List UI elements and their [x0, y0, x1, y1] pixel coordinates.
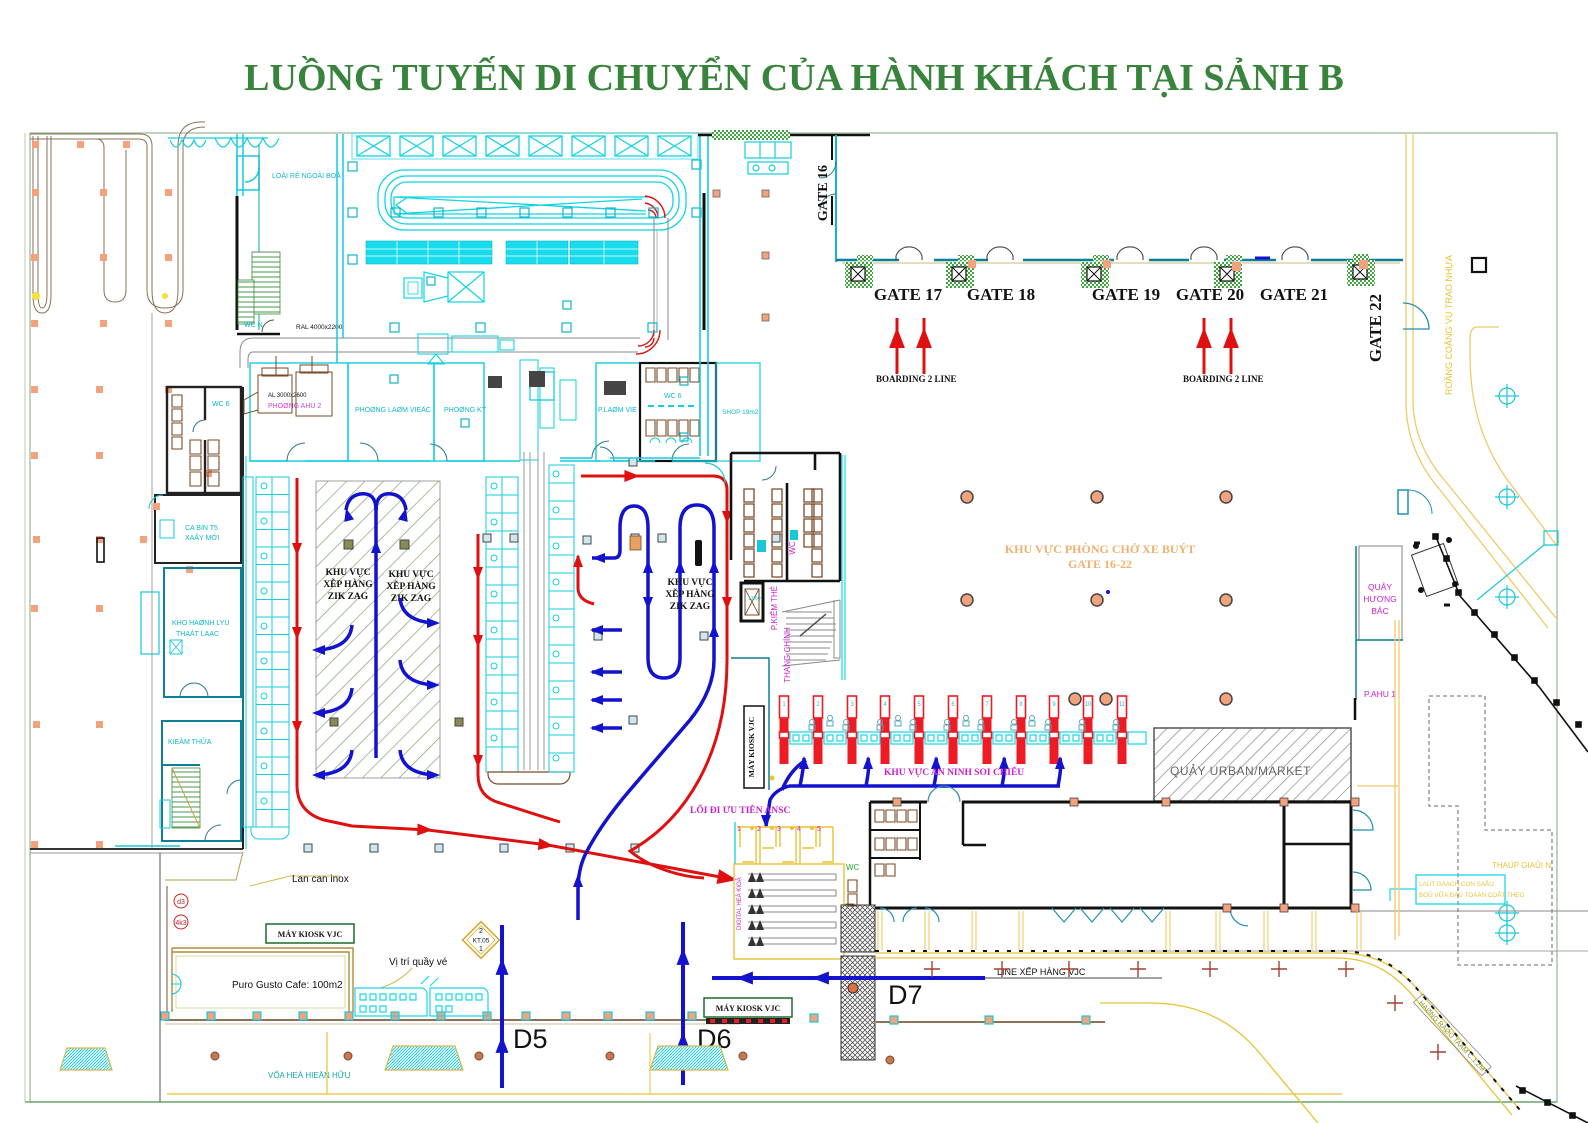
- svg-text:1: 1: [737, 826, 741, 833]
- svg-text:4k3: 4k3: [175, 920, 186, 927]
- svg-text:MÁY KIOSK VJC: MÁY KIOSK VJC: [716, 1003, 781, 1013]
- svg-text:4: 4: [797, 826, 801, 833]
- svg-text:2: 2: [757, 826, 761, 833]
- svg-text:RAL 4000x2200: RAL 4000x2200: [296, 324, 343, 331]
- svg-text:GATE 20: GATE 20: [1176, 285, 1244, 304]
- svg-text:BOARDING 2 LINE: BOARDING 2 LINE: [876, 374, 957, 384]
- svg-text:KHU VỰC: KHU VỰC: [325, 567, 370, 578]
- svg-text:BẢC: BẢC: [1371, 605, 1388, 616]
- svg-text:KT,05: KT,05: [473, 938, 490, 945]
- svg-text:BOARDING 2 LINE: BOARDING 2 LINE: [1183, 374, 1264, 384]
- svg-text:GATE 16-22: GATE 16-22: [1068, 557, 1132, 571]
- svg-text:KIEẢM THỬA: KIEẢM THỬA: [168, 737, 212, 746]
- svg-text:PHOØNG LAØM VIEÄC: PHOØNG LAØM VIEÄC: [355, 406, 431, 414]
- svg-text:THAÚP GIAÛI N: THAÚP GIAÛI N: [1492, 861, 1551, 870]
- svg-text:11: 11: [1119, 702, 1126, 708]
- svg-text:GATE 17: GATE 17: [874, 285, 943, 304]
- svg-text:AL 3000x2600: AL 3000x2600: [268, 393, 307, 399]
- svg-text:CA BIN T5: CA BIN T5: [185, 525, 218, 532]
- svg-text:Vị trí quầy vé: Vị trí quầy vé: [389, 956, 448, 968]
- svg-text:BOÛ VỮA ĐAÙ TOAÀN COÂT THEO: BOÛ VỮA ĐAÙ TOAÀN COÂT THEO: [1419, 890, 1524, 899]
- svg-text:WC 6: WC 6: [212, 401, 230, 408]
- svg-text:DIGITAL HEÀ KIOẬ: DIGITAL HEÀ KIOẬ: [736, 877, 743, 930]
- svg-text:KHU VỰC: KHU VỰC: [667, 577, 712, 588]
- svg-text:P.LAØM VIE: P.LAØM VIE: [598, 407, 637, 414]
- svg-text:D7: D7: [888, 980, 923, 1010]
- svg-text:MÁY KIOSK VJC: MÁY KIOSK VJC: [278, 929, 343, 939]
- svg-text:GATE 19: GATE 19: [1092, 285, 1160, 304]
- svg-text:WC: WC: [788, 541, 797, 555]
- svg-text:THANG CHÍNH: THANG CHÍNH: [783, 627, 792, 683]
- svg-text:PHOØNG AHU 2: PHOØNG AHU 2: [268, 403, 321, 410]
- svg-text:QUẢY URBAN/MARKET: QUẢY URBAN/MARKET: [1170, 763, 1311, 778]
- svg-text:ZIK ZAG: ZIK ZAG: [391, 594, 432, 604]
- svg-text:GATE 18: GATE 18: [967, 285, 1035, 304]
- svg-text:KHU VỰC PHÒNG CHỞ XE BUÝT: KHU VỰC PHÒNG CHỞ XE BUÝT: [1005, 542, 1195, 556]
- svg-text:ZIK ZAG: ZIK ZAG: [670, 602, 711, 612]
- svg-text:Lan can inox: Lan can inox: [292, 874, 349, 885]
- svg-text:LOÀI RẺ NGOÀI BOÃ: LOÀI RẺ NGOÀI BOÃ: [272, 171, 341, 180]
- svg-text:d3: d3: [177, 899, 185, 906]
- svg-text:MÁY KIOSK VJC: MÁY KIOSK VJC: [746, 717, 756, 777]
- svg-text:13.60: 13.60: [748, 596, 761, 602]
- svg-text:KHO HAØNH LYÙ: KHO HAØNH LYÙ: [172, 618, 229, 627]
- svg-text:D5: D5: [513, 1024, 548, 1054]
- svg-text:VỐA HEÀ HIEÄN HỮU: VỐA HEÀ HIEÄN HỮU: [268, 1070, 351, 1080]
- svg-text:P.KIỂM THẺ: P.KIỂM THẺ: [770, 586, 779, 630]
- svg-text:KHU VỰC: KHU VỰC: [388, 569, 433, 580]
- svg-text:3: 3: [777, 826, 781, 833]
- svg-text:GATE 16: GATE 16: [816, 165, 831, 221]
- svg-text:SHOP 19m2: SHOP 19m2: [722, 409, 759, 416]
- svg-text:P.AHU 1: P.AHU 1: [1364, 689, 1396, 699]
- svg-text:1: 1: [479, 946, 483, 953]
- svg-text:10: 10: [1085, 702, 1092, 708]
- svg-text:WC 6: WC 6: [664, 393, 682, 400]
- svg-text:WC: WC: [846, 863, 860, 872]
- svg-text:THAÁT LAẠC: THAÁT LAẠC: [176, 629, 219, 638]
- svg-text:LAÙT GAẠCH CON SAÂU: LAÙT GAẠCH CON SAÂU: [1419, 879, 1494, 888]
- svg-text:WC N: WC N: [244, 322, 263, 329]
- svg-text:QUẢY: QUẢY: [1368, 581, 1392, 592]
- svg-text:Puro Gusto Cafe: 100m2: Puro Gusto Cafe: 100m2: [232, 980, 343, 991]
- svg-text:GATE 22: GATE 22: [1366, 294, 1385, 362]
- svg-text:ZIK ZAG: ZIK ZAG: [328, 592, 369, 602]
- svg-text:LUỒNG TUYẾN DI CHUYỂN CỦA HÀNH: LUỒNG TUYẾN DI CHUYỂN CỦA HÀNH KHÁCH TẠI…: [244, 55, 1344, 99]
- svg-text:GATE 21: GATE 21: [1260, 285, 1328, 304]
- svg-text:PHOØNG KT: PHOØNG KT: [444, 407, 487, 414]
- svg-text:HƯƠNG: HƯƠNG: [1363, 594, 1396, 604]
- svg-text:XAÂY MỚI: XAÂY MỚI: [185, 533, 219, 542]
- svg-text:ROÄNG COÂNG VỤ TRAO NHỰA: ROÄNG COÂNG VỤ TRAO NHỰA: [1444, 255, 1454, 395]
- svg-text:2: 2: [479, 928, 483, 935]
- svg-text:5: 5: [817, 826, 821, 833]
